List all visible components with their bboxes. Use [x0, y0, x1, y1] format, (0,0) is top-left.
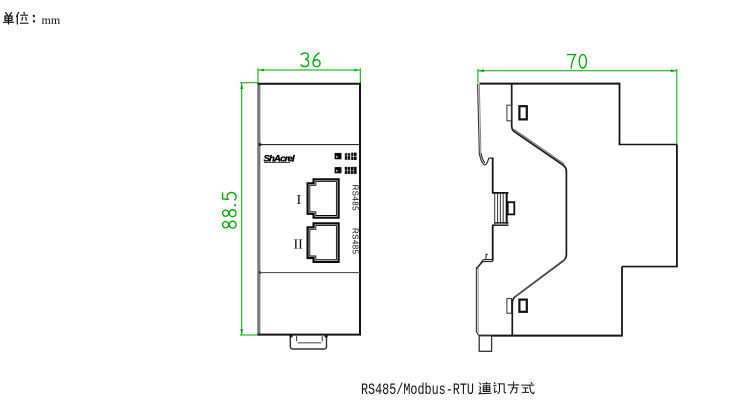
- svg-text:II: II: [294, 238, 304, 253]
- svg-text:mm: mm: [42, 13, 61, 27]
- svg-text:I: I: [297, 193, 302, 208]
- svg-text:RS485: RS485: [351, 228, 360, 255]
- svg-text:RS485: RS485: [351, 185, 360, 212]
- svg-text:RS485/Modbus-RTU: RS485/Modbus-RTU: [361, 381, 474, 399]
